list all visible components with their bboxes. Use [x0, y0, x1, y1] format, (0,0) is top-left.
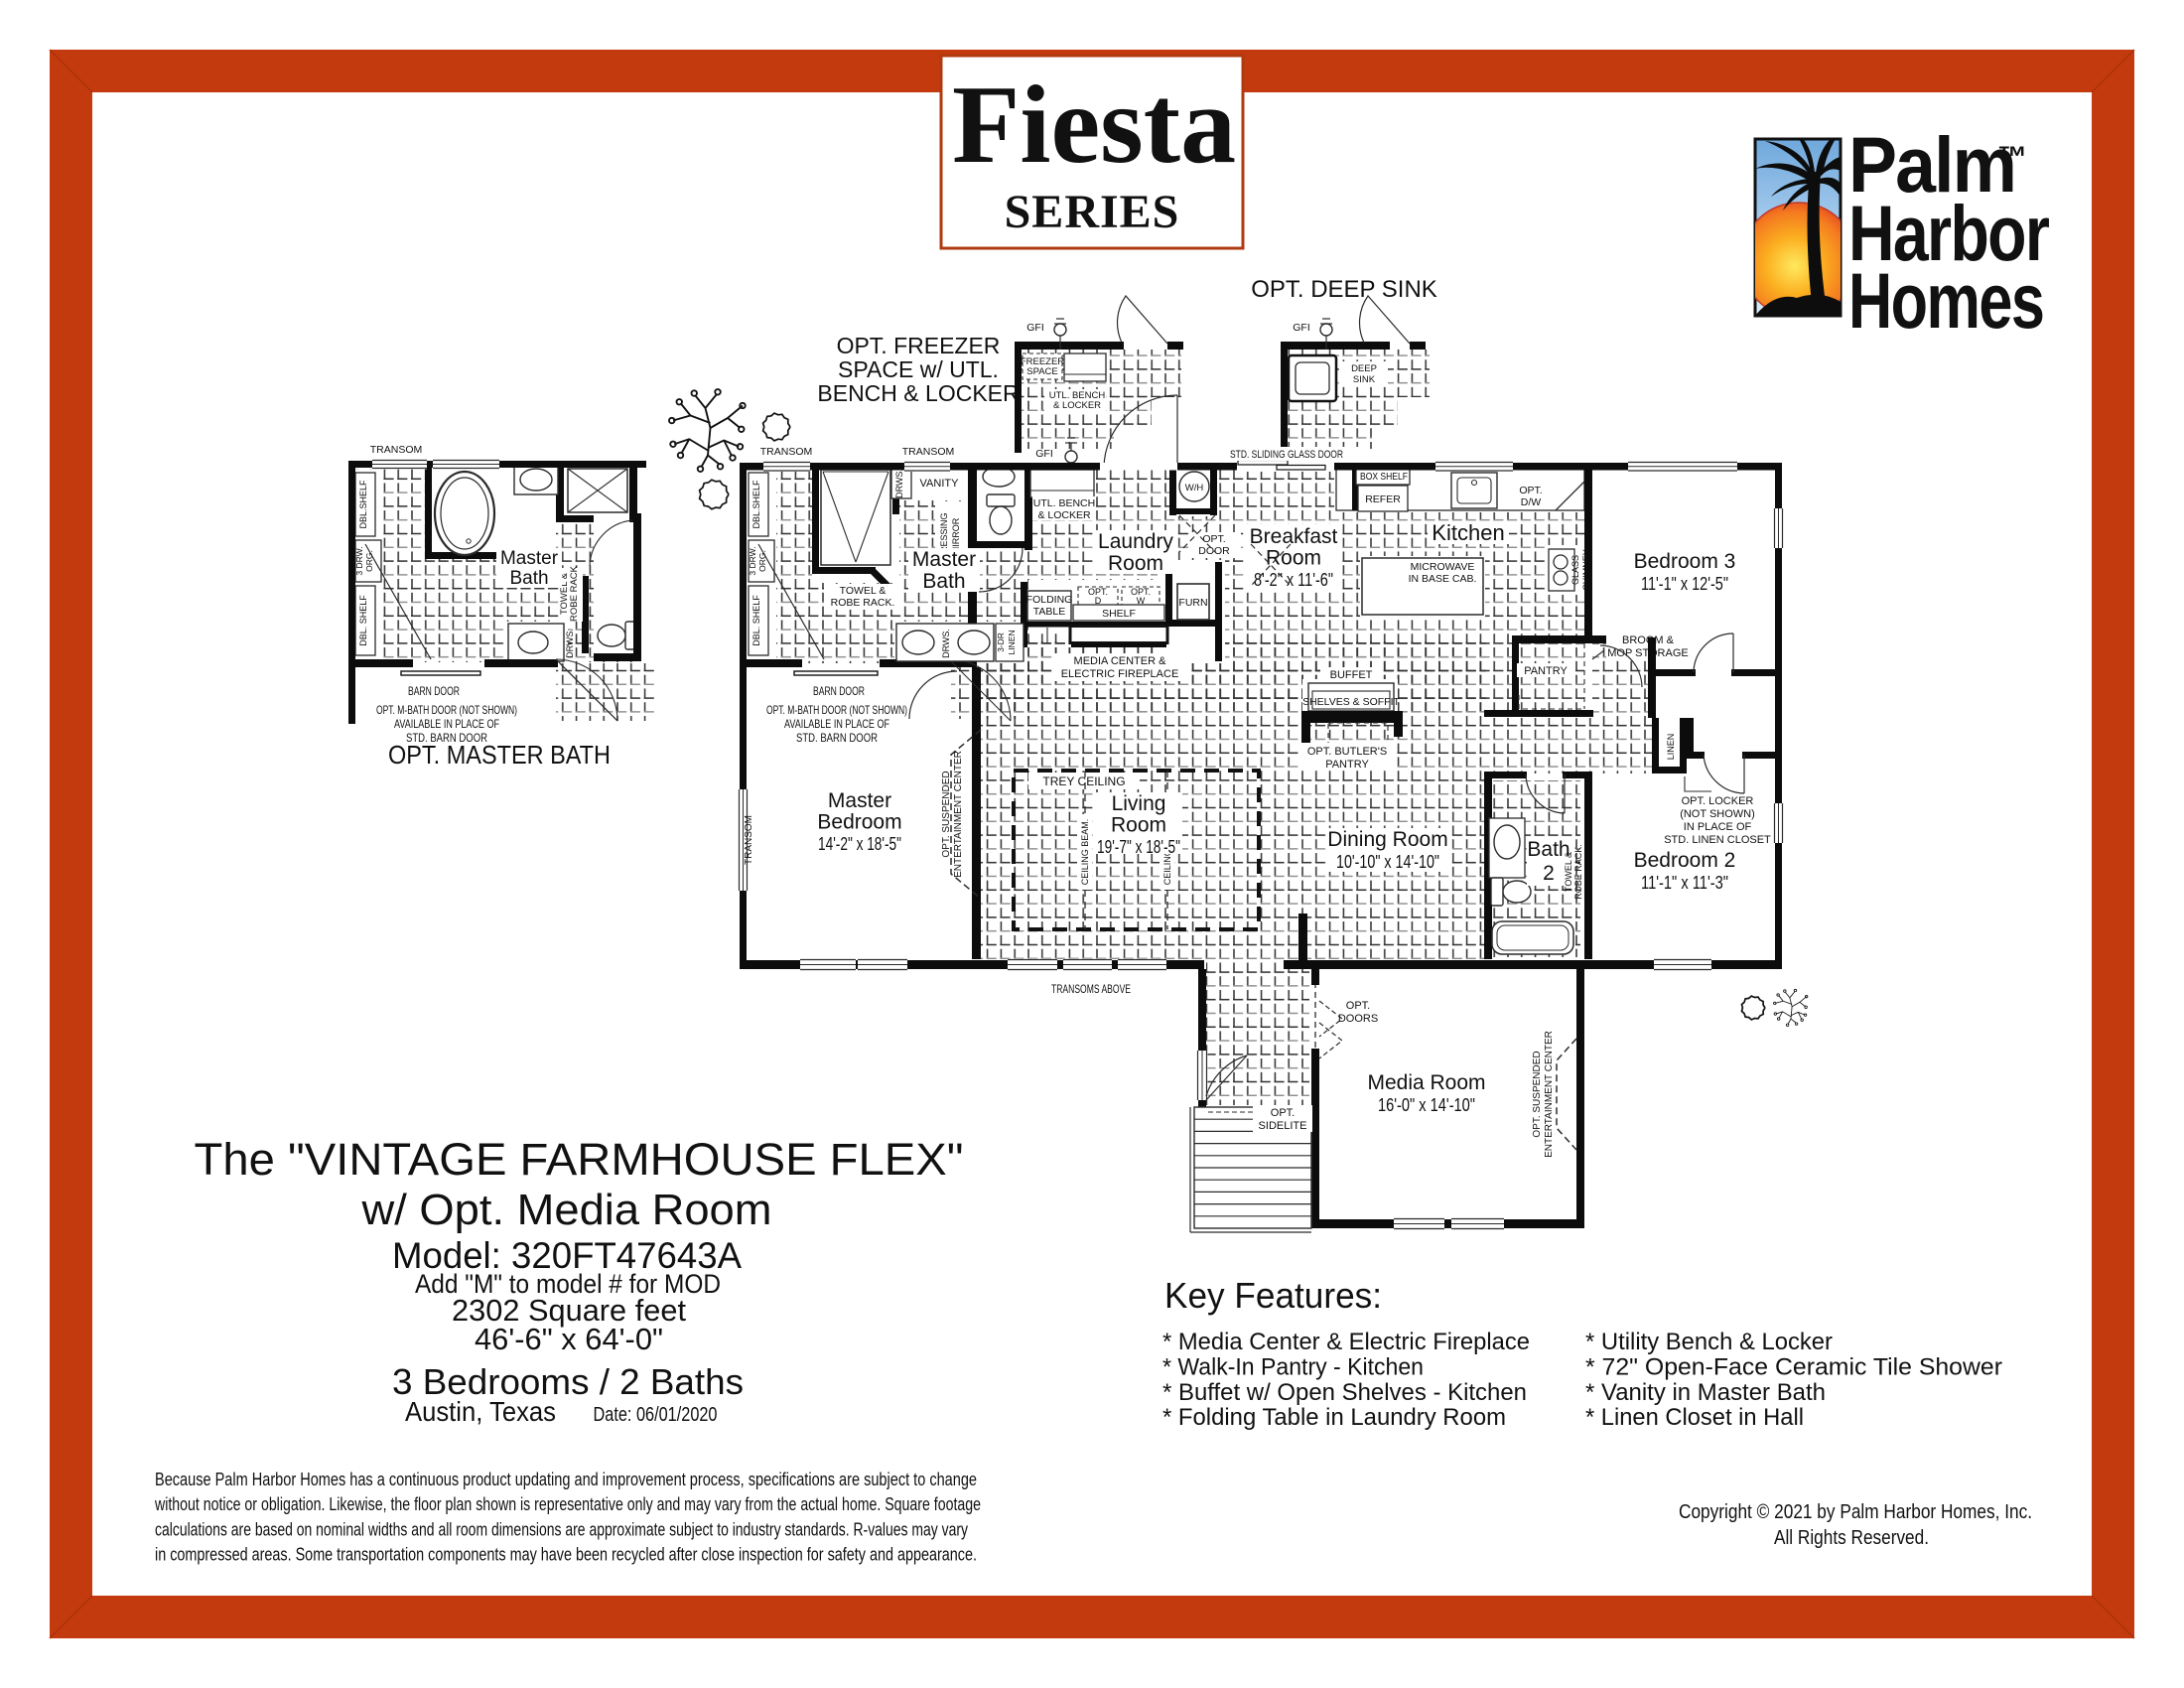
svg-text:3 DRW.: 3 DRW. — [354, 546, 364, 575]
svg-text:™: ™ — [1997, 141, 2027, 174]
svg-text:OPT. LOCKER: OPT. LOCKER — [1682, 795, 1754, 807]
svg-text:OPT. FREEZER: OPT. FREEZER — [837, 333, 1001, 358]
svg-text:Media Room: Media Room — [1367, 1071, 1485, 1094]
svg-text:SPACE: SPACE — [1026, 366, 1058, 377]
svg-text:DBL.SHELF: DBL.SHELF — [358, 480, 368, 529]
svg-text:GFI: GFI — [1035, 448, 1053, 460]
svg-text:ROBE RACK.: ROBE RACK. — [831, 597, 895, 609]
svg-text:& LOCKER: & LOCKER — [1053, 400, 1101, 411]
svg-text:FURN: FURN — [1178, 597, 1207, 609]
svg-text:IN BASE CAB.: IN BASE CAB. — [1409, 573, 1477, 585]
svg-text:ELECTRIC FIREPLACE: ELECTRIC FIREPLACE — [1061, 668, 1179, 680]
svg-text:TRANSOM: TRANSOM — [744, 815, 754, 865]
svg-text:DEEP: DEEP — [1351, 363, 1377, 374]
svg-text:w/ Opt. Media Room: w/ Opt. Media Room — [360, 1186, 771, 1234]
svg-text:BUFFET: BUFFET — [1330, 669, 1373, 681]
svg-text:Living: Living — [1112, 792, 1166, 815]
svg-text:3 DRW.: 3 DRW. — [748, 546, 757, 575]
svg-text:OPT. SUSPENDED: OPT. SUSPENDED — [1532, 1051, 1543, 1137]
svg-text:CEILING BEAM.: CEILING BEAM. — [1080, 819, 1090, 886]
svg-text:IN PLACE OF: IN PLACE OF — [1684, 821, 1752, 833]
svg-text:DRWS.: DRWS. — [894, 469, 904, 498]
svg-text:DBL.SHELF: DBL.SHELF — [751, 480, 761, 529]
svg-text:(NOT SHOWN): (NOT SHOWN) — [1680, 808, 1755, 820]
svg-text:* Media Center & Electric Fire: * Media Center & Electric Fireplace — [1162, 1329, 1530, 1355]
svg-text:TOWEL &: TOWEL & — [1564, 852, 1573, 892]
svg-text:Room: Room — [1108, 552, 1163, 575]
svg-text:MICROWAVE: MICROWAVE — [1411, 561, 1475, 573]
svg-text:SHELVES & SOFFIT: SHELVES & SOFFIT — [1302, 696, 1400, 708]
svg-text:LINEN: LINEN — [1007, 630, 1017, 654]
svg-text:TOWEL &: TOWEL & — [840, 585, 887, 597]
svg-text:SERIES: SERIES — [1005, 186, 1180, 238]
svg-text:BOX SHELF: BOX SHELF — [1360, 472, 1408, 483]
svg-text:SINK: SINK — [1353, 374, 1376, 385]
svg-text:FOLDING: FOLDING — [1026, 594, 1073, 606]
svg-text:TREY CEILING: TREY CEILING — [1042, 774, 1125, 788]
svg-text:All Rights Reserved.: All Rights Reserved. — [1774, 1527, 1929, 1549]
svg-text:Dining Room: Dining Room — [1327, 828, 1447, 851]
svg-text:Homes: Homes — [1848, 256, 2043, 344]
svg-text:* 72" Open-Face Ceramic Tile S: * 72" Open-Face Ceramic Tile Shower — [1585, 1353, 2002, 1380]
svg-text:OPT. MASTER BATH: OPT. MASTER BATH — [388, 740, 611, 770]
svg-text:D/W: D/W — [1521, 496, 1542, 508]
svg-text:8'-2" x 11'-6": 8'-2" x 11'-6" — [1254, 570, 1333, 590]
svg-text:Fiesta: Fiesta — [952, 64, 1236, 187]
svg-text:MEDIA CENTER &: MEDIA CENTER & — [1074, 655, 1167, 667]
svg-text:DRWS.: DRWS. — [941, 629, 951, 658]
svg-text:Bedroom: Bedroom — [817, 811, 901, 834]
svg-text:OPT. M-BATH DOOR (NOT SHOWN): OPT. M-BATH DOOR (NOT SHOWN) — [766, 703, 907, 717]
svg-text:Bedroom 3: Bedroom 3 — [1634, 550, 1736, 573]
svg-text:SPACE w/ UTL.: SPACE w/ UTL. — [838, 356, 999, 382]
svg-text:Austin, Texas: Austin, Texas — [405, 1396, 556, 1427]
svg-text:BENCH & LOCKER: BENCH & LOCKER — [817, 380, 1019, 406]
svg-text:* Linen Closet in Hall: * Linen Closet in Hall — [1585, 1404, 1804, 1431]
svg-text:OPT.: OPT. — [1519, 485, 1542, 496]
svg-text:Laundry: Laundry — [1098, 530, 1173, 553]
svg-text:* Walk-In Pantry - Kitchen: * Walk-In Pantry - Kitchen — [1162, 1353, 1424, 1380]
svg-text:DRWS.: DRWS. — [565, 629, 575, 658]
svg-text:W/H: W/H — [1185, 483, 1204, 493]
svg-text:ORG.: ORG. — [757, 550, 767, 572]
svg-text:46'-6" x 64'-0": 46'-6" x 64'-0" — [475, 1322, 663, 1356]
svg-text:DBL. SHELF: DBL. SHELF — [358, 595, 368, 646]
svg-text:16'-0" x 14'-10": 16'-0" x 14'-10" — [1378, 1095, 1475, 1115]
svg-text:Bath: Bath — [509, 568, 548, 589]
svg-text:TABLE: TABLE — [1033, 606, 1065, 618]
svg-text:ROBE RACK.: ROBE RACK. — [1573, 844, 1583, 900]
svg-text:OPT. SUSPENDED: OPT. SUSPENDED — [941, 771, 952, 857]
svg-text:Master: Master — [828, 789, 891, 812]
svg-text:BARN DOOR: BARN DOOR — [813, 684, 865, 698]
svg-text:LINEN: LINEN — [1666, 734, 1676, 761]
svg-text:OPT. DEEP SINK: OPT. DEEP SINK — [1251, 276, 1437, 303]
svg-text:without notice or obligation.: without notice or obligation. Likewise, … — [154, 1494, 981, 1514]
svg-text:AVAILABLE IN PLACE OF: AVAILABLE IN PLACE OF — [784, 717, 889, 731]
svg-text:PANTRY: PANTRY — [1325, 759, 1369, 771]
svg-text:REFER: REFER — [1365, 493, 1401, 505]
svg-text:* Vanity in Master Bath: * Vanity in Master Bath — [1585, 1379, 1826, 1406]
svg-text:Copyright © 2021 by Palm Harbo: Copyright © 2021 by Palm Harbor Homes, I… — [1679, 1501, 2032, 1523]
svg-text:14'-2" x 18'-5": 14'-2" x 18'-5" — [818, 834, 901, 854]
svg-text:BARN DOOR: BARN DOOR — [408, 684, 460, 698]
svg-text:10'-10" x 14'-10": 10'-10" x 14'-10" — [1336, 852, 1439, 872]
svg-text:OPT.: OPT. — [1202, 533, 1225, 545]
svg-text:Kitchen: Kitchen — [1432, 520, 1504, 545]
svg-text:Bedroom 2: Bedroom 2 — [1634, 849, 1736, 872]
svg-text:The "VINTAGE FARMHOUSE FLEX": The "VINTAGE FARMHOUSE FLEX" — [195, 1134, 964, 1185]
svg-text:Master: Master — [912, 548, 976, 571]
svg-text:Bath: Bath — [922, 570, 965, 593]
svg-text:Date: 06/01/2020: Date: 06/01/2020 — [594, 1403, 718, 1426]
svg-text:STD. BARN DOOR: STD. BARN DOOR — [796, 731, 878, 745]
svg-text:OPT. M-BATH DOOR (NOT SHOWN): OPT. M-BATH DOOR (NOT SHOWN) — [376, 703, 517, 717]
svg-text:GFI: GFI — [1293, 322, 1310, 334]
svg-text:calculations are based on nomi: calculations are based on nominal widths… — [155, 1519, 968, 1539]
svg-text:GLASS: GLASS — [1570, 555, 1580, 585]
svg-text:TRANSOM: TRANSOM — [760, 446, 813, 458]
svg-text:ORG.: ORG. — [364, 550, 374, 572]
svg-text:Room: Room — [1111, 814, 1166, 837]
svg-text:OPT. BUTLER'S: OPT. BUTLER'S — [1307, 746, 1387, 758]
svg-text:AVAILABLE IN PLACE OF: AVAILABLE IN PLACE OF — [394, 717, 499, 731]
svg-text:Breakfast: Breakfast — [1250, 525, 1338, 548]
svg-text:Master: Master — [500, 548, 559, 569]
svg-text:ENTERTAINMENT CENTER: ENTERTAINMENT CENTER — [1544, 1031, 1555, 1158]
svg-text:SIDELITE: SIDELITE — [1259, 1120, 1307, 1132]
svg-text:& LOCKER: & LOCKER — [1037, 509, 1091, 521]
svg-text:OPT.: OPT. — [1271, 1107, 1295, 1119]
svg-text:3-DR: 3-DR — [996, 633, 1006, 652]
svg-text:ENTERTAINMENT CENTER: ENTERTAINMENT CENTER — [953, 751, 964, 878]
svg-text:TRANSOM: TRANSOM — [370, 444, 423, 456]
svg-text:OPT.: OPT. — [1346, 1000, 1370, 1012]
svg-text:19'-7" x 18'-5": 19'-7" x 18'-5" — [1097, 837, 1180, 857]
svg-text:GFI: GFI — [1026, 322, 1044, 334]
svg-text:STD. SLIDING GLASS DOOR: STD. SLIDING GLASS DOOR — [1230, 449, 1343, 461]
svg-text:UTL. BENCH: UTL. BENCH — [1033, 497, 1095, 509]
svg-text:VANITY: VANITY — [920, 478, 960, 490]
svg-text:TRANSOMS ABOVE: TRANSOMS ABOVE — [1051, 982, 1131, 996]
svg-text:DOORS: DOORS — [1338, 1013, 1378, 1025]
svg-text:Room: Room — [1266, 547, 1321, 570]
svg-text:ROBE RACK: ROBE RACK — [569, 565, 580, 622]
svg-text:Key Features:: Key Features: — [1164, 1275, 1382, 1316]
svg-text:TRANSOM: TRANSOM — [902, 446, 955, 458]
svg-text:DBL. SHELF: DBL. SHELF — [751, 595, 761, 646]
svg-text:Because Palm Harbor Homes has: Because Palm Harbor Homes has a continuo… — [155, 1470, 977, 1489]
svg-text:PANTRY: PANTRY — [1524, 665, 1568, 677]
svg-text:STD. LINEN CLOSET: STD. LINEN CLOSET — [1664, 834, 1771, 846]
svg-text:SHELF: SHELF — [1102, 608, 1136, 620]
svg-text:11'-1" x 12'-5": 11'-1" x 12'-5" — [1641, 574, 1728, 594]
svg-text:in compressed areas. Some tran: in compressed areas. Some transportation… — [155, 1545, 977, 1565]
svg-text:11'-1" x 11'-3": 11'-1" x 11'-3" — [1641, 873, 1728, 893]
svg-text:* Buffet w/ Open Shelves - Kit: * Buffet w/ Open Shelves - Kitchen — [1162, 1379, 1527, 1406]
svg-text:* Folding Table in Laundry Roo: * Folding Table in Laundry Room — [1162, 1404, 1506, 1431]
svg-text:2: 2 — [1543, 862, 1555, 885]
svg-text:* Utility Bench & Locker: * Utility Bench & Locker — [1585, 1329, 1833, 1355]
